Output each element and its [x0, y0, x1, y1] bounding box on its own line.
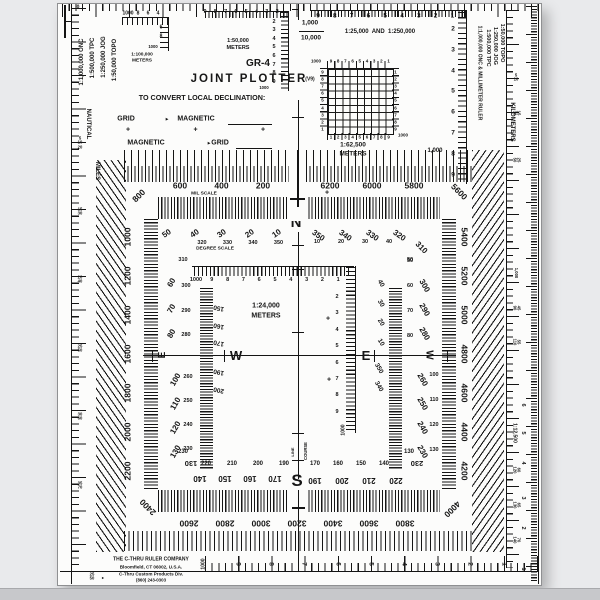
- tick-band: [526, 6, 537, 582]
- degree-scale-left-upper-small-1: 290: [181, 309, 190, 315]
- rule-line: [228, 124, 272, 125]
- tick-band: [507, 10, 519, 568]
- fraction-denominator: 10,000: [301, 36, 321, 43]
- degree-scale-bottom-left-upright-0: 220: [201, 461, 211, 467]
- mil-scale-right-5: 4400: [460, 423, 469, 442]
- degree-scale-right-lower-small-1: 110: [430, 398, 439, 404]
- mil-scale-top-left-0: 600: [173, 182, 187, 191]
- ruler-50k-v-7: 9: [272, 80, 275, 86]
- grid-62500-top-0: 9: [330, 60, 333, 65]
- ruler-50k-h-7: 2: [276, 10, 279, 16]
- ruler-24k-h-6: 4: [289, 278, 292, 284]
- ruler-25k-h-4: 5: [383, 14, 387, 21]
- grid-62500-right-0: 1: [394, 70, 397, 75]
- ruler-50k-v-1: 3: [272, 28, 275, 34]
- mil-scale-top-left-2: 200: [256, 182, 270, 191]
- degree-scale-bottom-left-upright-2: 200: [253, 461, 263, 467]
- ruler-25k-h-7: 2: [434, 14, 438, 21]
- tick-band: [346, 267, 355, 432]
- grid-62500-bottom-1: 2: [337, 135, 340, 140]
- ruler-25k-h-1: 8: [333, 14, 337, 21]
- tick-band: [389, 288, 402, 470]
- declination-row2-from: MAGNETIC: [127, 139, 164, 146]
- left-edge-pairs-3: 25 50: [78, 344, 83, 353]
- mil-scale-top-right-2: 5800: [405, 182, 424, 191]
- scale-label-jog: 1:250,000 JOG: [101, 36, 107, 77]
- scale-label-topo: 1:50,000 TOPO: [112, 39, 118, 81]
- degree-scale-bottom-left-inverted-2: 160: [243, 474, 256, 482]
- rule-line: [292, 507, 305, 509]
- degree-scale-top-right-small-1: 20: [338, 240, 344, 246]
- ruler-25k-h-0: 9: [316, 14, 320, 21]
- mil-scale-top-right-1: 6000: [363, 182, 382, 191]
- mil-scale-right-6: 4200: [460, 462, 469, 481]
- degree-scale-bottom-right-inverted-1: 200: [335, 476, 348, 484]
- ruler-25k-v-3: 5: [451, 89, 455, 96]
- right-edge-cm-numbers-5: 1: [519, 567, 525, 570]
- degree-scale-right-lower-small-3: 130: [429, 448, 438, 454]
- ruler-24k-v-6: 8: [335, 394, 338, 400]
- degree-scale-left-lower-small-2: 240: [183, 423, 192, 429]
- ruler-100k-label2: METERS: [132, 58, 152, 63]
- ruler-24k-h-7: 3: [305, 278, 308, 284]
- grid-62500-bottom-7: 8: [380, 135, 383, 140]
- degree-scale-bottom-left-inverted-0: 140: [193, 474, 206, 482]
- degree-scale-bottom-left-upright-3: 190: [279, 461, 289, 467]
- grid-62500-top-8: 1: [387, 60, 390, 65]
- mil-scale-left-2: 1400: [124, 306, 133, 325]
- bottom-ruler-numbers-2: 7: [300, 562, 307, 566]
- left-edge-pairs-1: 15 30: [78, 207, 83, 216]
- ruler-100k-v-1: 8: [160, 34, 163, 39]
- grid-62500-right-4: 5: [394, 99, 397, 104]
- ruler-24k-v-5: 7: [335, 377, 338, 383]
- degree-scale-bottom-right-inverted-2: 210: [362, 476, 375, 484]
- degree-scale-top-right-small-2: 30: [362, 240, 368, 246]
- grid-62500-left-2: 7: [321, 85, 324, 90]
- degree-scale-right-upper-small-1: 60: [407, 284, 413, 290]
- degree-scale-right-lower-small-0: 100: [429, 373, 438, 379]
- degree-scale-top-left-small-2: 340: [248, 241, 257, 247]
- rule-line: [292, 9, 299, 10]
- grid-62500-top-4: 5: [359, 60, 362, 65]
- ruler-100k-h-2: 6: [147, 11, 150, 16]
- degree-scale-left-upper-small-0: 300: [181, 284, 190, 290]
- mil-scale-top-right-0: 6200: [321, 182, 340, 191]
- ruler-25k-v-6: 8: [451, 151, 455, 158]
- degree-scale-top-left-small-1: 330: [223, 241, 232, 247]
- mil-scale-bottom-4: 3400: [324, 519, 343, 528]
- grid-62500-left-4: 5: [321, 99, 324, 104]
- ruler-25k-h-6: 3: [417, 14, 421, 21]
- grid-62500-bottom-4: 5: [359, 135, 362, 140]
- arrow-right-icon: ▸: [102, 576, 104, 580]
- grid-62500-right-1: 2: [394, 77, 397, 82]
- ruler-100k-label: 1:100,000: [131, 52, 153, 57]
- line-label: LINE: [291, 447, 295, 456]
- bottom-ruler-numbers-3: 6: [333, 562, 340, 566]
- rule-line: [168, 17, 169, 51]
- grid-62500-right-7: 8: [394, 121, 397, 126]
- rule-line: [292, 460, 304, 461]
- degree-scale-top-right-small-0: 10: [314, 240, 320, 246]
- bottom-ruler-numbers-4: 5: [366, 562, 373, 566]
- ruler-24k-h-5: 5: [273, 278, 276, 284]
- rule-line: [299, 31, 324, 32]
- declination-plus-marks-0: +: [126, 126, 130, 133]
- rule-line: [466, 10, 467, 184]
- ruler-50k-h-2: 7: [224, 10, 227, 16]
- declination-row2-to: GRID: [211, 139, 229, 146]
- right-edge-pairs-5: 55 110: [512, 339, 521, 346]
- tick-band: [96, 160, 126, 552]
- rule-line: [310, 10, 467, 11]
- rule-line: [224, 350, 225, 362]
- mil-scale-top-left-1: 400: [214, 182, 228, 191]
- grid-62500-bottom-0: 1: [330, 135, 333, 140]
- ruler-25k-label: 1:25,000 AND 1:250,000: [345, 29, 415, 35]
- scan-background-strip: [0, 588, 600, 600]
- right-edge-cm-numbers-3: 3: [519, 496, 525, 499]
- grid-62500-top-1: 8: [337, 60, 340, 65]
- bottom-ruler-numbers-0: 9: [234, 562, 241, 566]
- declination-row1-to: MAGNETIC: [177, 115, 214, 122]
- grid-62500-label: 1:62,500: [340, 143, 366, 150]
- ruler-50k-h-4: 5: [245, 10, 248, 16]
- degree-scale-bottom-right-inverted-0: 190: [308, 476, 321, 484]
- grid-62500-bottom-5: 6: [366, 135, 369, 140]
- grid-62500-top-6: 3: [373, 60, 376, 65]
- mil-scale-left-1: 1200: [124, 267, 133, 286]
- right-scale-tpc: 1:500,000 TPC: [484, 29, 490, 66]
- grid-62500-left-3: 6: [321, 92, 324, 97]
- registration-marks-0: +: [325, 189, 329, 196]
- ruler-25k-v-4: 6: [451, 110, 455, 117]
- rule-line: [288, 11, 289, 91]
- bottom-ruler-numbers-7: 2: [466, 562, 473, 566]
- mil-scale-left-3: 1600: [124, 345, 133, 364]
- grid-corner-1000-br: 1000: [398, 134, 408, 139]
- grid-corner-1000: 1000: [311, 60, 321, 65]
- degree-scale-bottom-left-inverted-1: 150: [218, 474, 231, 482]
- mil-scale-label: MIL SCALE: [191, 191, 217, 196]
- ruler-24k-label: 1:24,000: [252, 302, 280, 309]
- ruler-50k-v-0: 2: [272, 20, 275, 26]
- degree-scale-right-lower-small-2: 120: [429, 423, 438, 429]
- degree-scale-bottom-right-upright-2: 150: [356, 461, 366, 467]
- right-edge-cm-numbers-1: 5: [519, 431, 525, 434]
- ruler-25k-h-8: 1: [451, 14, 455, 21]
- course-label: COURSE: [304, 442, 308, 460]
- degree-scale-left-lower-small-1: 250: [183, 399, 192, 405]
- degree-scale-right-upper-small-0: 50: [407, 259, 413, 265]
- grid-62500-right-8: 9: [394, 128, 397, 133]
- model-label: GR-4: [246, 59, 270, 70]
- ruler-100k-h-0: 1000: [122, 11, 133, 16]
- ruler-100k-h-1: 8: [137, 11, 140, 16]
- ruler-24k-v-4: 6: [335, 361, 338, 367]
- mil-scale-left-6: 2200: [124, 462, 133, 481]
- mil-scale-left-4: 1800: [124, 384, 133, 403]
- declination-row1-from: GRID: [117, 115, 135, 122]
- grid-62500-right-6: 7: [394, 113, 397, 118]
- ruler-25k-v-1: 3: [451, 47, 455, 54]
- grid-62500-right-5: 6: [394, 106, 397, 111]
- grid-62500-bottom-8: 9: [387, 135, 390, 140]
- right-edge-cm-numbers-2: 4: [519, 461, 525, 464]
- grid-62500-top-2: 7: [344, 60, 347, 65]
- grid-62500-top-7: 2: [380, 60, 383, 65]
- grid-62500-bottom-6: 7: [373, 135, 376, 140]
- bottom-ruler-numbers-6: 3: [433, 562, 440, 566]
- company-phone: (860) 243-0303: [136, 579, 166, 584]
- degree-scale-left-upper-small-2: 280: [181, 333, 190, 339]
- grid-62500-right-3: 4: [394, 92, 397, 97]
- arrow-right-icon: ▸: [208, 141, 211, 146]
- ruler-24k-h-4: 6: [258, 278, 261, 284]
- bottom-ruler-numbers-8: 1: [499, 562, 506, 566]
- left-edge-pairs-2: 20 40: [78, 276, 83, 285]
- mil-scale-left-0: 1000: [124, 228, 133, 247]
- rule-line: [447, 350, 448, 362]
- ruler-25k-h-5: 4: [400, 14, 404, 21]
- version-label: (V9): [305, 77, 314, 82]
- left-bottom-pair: 25 50: [90, 573, 95, 582]
- ruler-50k-v-5: 7: [272, 63, 275, 69]
- ruler-50k-h-5: 4: [255, 10, 258, 16]
- ruler-24k-h-2: 8: [226, 278, 229, 284]
- rule-line: [292, 245, 304, 246]
- right-edge-pairs-1: 15 30: [512, 111, 521, 116]
- rule-line: [538, 4, 539, 584]
- bottom-ruler-numbers-5: 4: [400, 562, 407, 566]
- degree-scale-bottom-right-upright-3: 140: [379, 461, 389, 467]
- company-division: C-Thru Custom Products Div.: [119, 572, 183, 577]
- ruler-24k-v-3: 5: [335, 344, 338, 350]
- right-edge-pairs-7: 65 130: [512, 502, 521, 509]
- grid-62500-bottom-2: 3: [344, 135, 347, 140]
- right-scale-topo: 1:50,000 TOPO: [498, 24, 504, 63]
- ruler-50k-v-2: 4: [272, 37, 275, 43]
- mil-scale-bottom-1: 2800: [216, 519, 235, 528]
- ruler-24k-h-0: 1000: [190, 278, 202, 284]
- declination-heading: TO CONVERT LOCAL DECLINATION:: [139, 94, 266, 102]
- mil-scale-bottom-3: 3200: [288, 519, 307, 528]
- right-edge-cm-numbers-4: 2: [519, 526, 525, 529]
- grid-62500: [327, 68, 394, 135]
- bottom-ruler-numbers-1: 8: [267, 562, 274, 566]
- ruler-25k-v-7: 9: [451, 172, 455, 179]
- grid-62500-left-6: 3: [321, 113, 324, 118]
- ruler-25k-v-5: 7: [451, 131, 455, 138]
- degree-corner-bl-inv: 130: [185, 459, 198, 467]
- degree-scale-top-right-small-3: 40: [386, 240, 392, 246]
- degree-scale-bottom-left-upright-1: 210: [227, 461, 237, 467]
- mil-scale-left-5: 2000: [124, 423, 133, 442]
- rule-line: [152, 350, 153, 362]
- rule-line: [355, 266, 356, 433]
- right-edge-pairs-4: 45 90: [512, 306, 521, 311]
- course-ring-left-upper-2: 170: [213, 338, 225, 347]
- rule-line: [60, 571, 539, 573]
- mil-scale-bottom-6: 3800: [396, 519, 415, 528]
- grid-62500-left-8: 1: [321, 128, 324, 133]
- ruler-50k-end: 1000: [259, 86, 268, 90]
- mil-scale-bottom-2: 3000: [252, 519, 271, 528]
- right-scale-jog: 1:250,000 JOG: [491, 27, 497, 65]
- degree-corner-tl: 310: [178, 258, 187, 264]
- ruler-50k-h-6: 3: [265, 10, 268, 16]
- declination-plus-marks-1: +: [193, 126, 197, 133]
- grid-62500-top-3: 6: [351, 60, 354, 65]
- scale-label-tpc: 1:500,000 TPC: [90, 38, 96, 79]
- ruler-24k-h-3: 7: [242, 278, 245, 284]
- ruler-50k-v-3: 5: [272, 45, 275, 51]
- mil-scale-right-4: 4600: [460, 384, 469, 403]
- ruler-25k-v-2: 4: [451, 68, 455, 75]
- ruler-100k-v-0: 6: [160, 25, 163, 30]
- tick-band: [194, 267, 352, 276]
- rule-line: [292, 433, 304, 434]
- tick-band: [472, 150, 504, 552]
- ruler-24k-h-8: 2: [321, 278, 324, 284]
- mil-scale-right-2: 5000: [460, 306, 469, 325]
- fraction-numerator: 1,000: [302, 21, 318, 28]
- grid-62500-top-5: 4: [366, 60, 369, 65]
- grid-62500-left-1: 8: [321, 77, 324, 82]
- rule-line: [143, 355, 456, 356]
- degree-corner-br: 130: [404, 449, 414, 455]
- degree-scale-bottom-left-inverted-3: 170: [268, 474, 281, 482]
- registration-marks-2: +: [327, 376, 331, 383]
- degree-scale-left-lower-small-0: 260: [183, 375, 192, 381]
- degree-scale-top-left-small-3: 350: [274, 241, 283, 247]
- rule-line: [71, 4, 72, 584]
- rule-line: [292, 117, 304, 118]
- page-title: JOINT PLOTTER: [191, 73, 308, 85]
- mil-scale-bottom-0: 2600: [180, 519, 199, 528]
- left-edge-pairs-0: 5 10 20: [78, 136, 83, 149]
- degree-scale-bottom-right-upright-0: 170: [310, 461, 320, 467]
- arrow-right-icon: ▸: [166, 117, 169, 122]
- rule-line: [292, 332, 304, 333]
- grid-62500-left-7: 2: [321, 121, 324, 126]
- registration-marks-1: +: [326, 315, 330, 322]
- rule-line: [374, 350, 375, 362]
- degree-scale-right-upper-small-3: 80: [407, 334, 413, 340]
- rule-line: [236, 148, 272, 149]
- left-edge-pairs-4: 30 60: [78, 413, 83, 422]
- cardinal-south: S: [291, 472, 302, 490]
- mil-scale-right-0: 5400: [460, 228, 469, 247]
- rule-line: [506, 10, 507, 568]
- degree-corner-br-inv: 230: [411, 459, 424, 467]
- ruler-100k-end: 1000: [148, 45, 157, 49]
- ruler-50k-v-6: 8: [272, 71, 275, 77]
- ruler-50k-v-4: 6: [272, 54, 275, 60]
- ruler-25k-v-0: 2: [451, 27, 455, 34]
- ruler-50k-h-1: 8: [214, 10, 217, 16]
- right-edge-cm-numbers-0: 6: [519, 403, 525, 406]
- right-edge-pairs-2: 25 50: [512, 158, 521, 163]
- tick-band: [200, 288, 213, 470]
- course-ring-left-lower-0: 190: [213, 367, 225, 376]
- left-edge-pairs-5: 35 70: [78, 481, 83, 490]
- ruler-100k-h-3: 4: [157, 11, 160, 16]
- rule-line: [290, 198, 305, 200]
- ruler-25k-h-2: 7: [350, 14, 354, 21]
- right-edge-pairs-6: 60 120: [512, 467, 521, 474]
- course-ring-left-upper-0: 150: [213, 303, 225, 312]
- ruler-24k-label2: METERS: [251, 312, 280, 319]
- grid-62500-left-0: 9: [321, 70, 324, 75]
- ruler-24k-h-1: 9: [210, 278, 213, 284]
- rule-line: [298, 4, 300, 20]
- mil-scale-bottom-5: 3600: [360, 519, 379, 528]
- ruler-50k-label2: METERS: [227, 46, 250, 52]
- ruler-24k-v-2: 4: [335, 328, 338, 334]
- course-ring-left-lower-1: 200: [213, 385, 225, 394]
- declination-plus-marks-2: +: [261, 126, 265, 133]
- company-name: THE C-THRU RULER COMPANY: [113, 557, 189, 562]
- grid-62500-bottom-3: 4: [351, 135, 354, 140]
- ruler-50k-h-0: 9: [203, 10, 206, 16]
- grid-62500-left-5: 4: [321, 106, 324, 111]
- ruler-25k-h-3: 6: [367, 14, 371, 21]
- rule-line: [192, 266, 354, 267]
- degree-scale-bottom-right-upright-1: 160: [333, 461, 343, 467]
- ruler-24k-v-7: 9: [335, 410, 338, 416]
- degree-scale-bottom-right-inverted-3: 220: [389, 476, 402, 484]
- rule-line: [292, 269, 304, 270]
- ruler-50k-h-3: 6: [234, 10, 237, 16]
- degree-scale-label: DEGREE SCALE: [196, 246, 234, 251]
- ruler-50k-label: 1:50,000: [227, 39, 249, 45]
- ruler-24k-h-9: 1: [337, 278, 340, 284]
- ruler-24k-v-0: 2: [335, 295, 338, 301]
- ruler-24k-v-1: 3: [335, 312, 338, 318]
- grid-62500-right-2: 3: [394, 85, 397, 90]
- right-edge-pairs-3: 1,000: [514, 268, 518, 278]
- rule-line: [64, 21, 71, 22]
- degree-scale-top-left-small-0: 320: [197, 241, 206, 247]
- rule-line: [122, 17, 169, 18]
- degree-scale-right-upper-small-2: 70: [407, 309, 413, 315]
- mil-scale-right-1: 5200: [460, 267, 469, 286]
- degree-scale-left-lower-small-3: 230: [183, 447, 192, 453]
- right-edge-pairs-0: 5 10: [514, 74, 519, 83]
- right-edge-pairs-8: 70 140: [512, 537, 521, 544]
- right-scale-onc-mm: 1:1,000,000 ONC & MILLIMETER RULER: [476, 26, 481, 121]
- gr4-joint-plotter-scan: GR-4 JOINT PLOTTER (V9) TO CONVERT LOCAL…: [0, 0, 600, 600]
- mil-scale-right-3: 4800: [460, 345, 469, 364]
